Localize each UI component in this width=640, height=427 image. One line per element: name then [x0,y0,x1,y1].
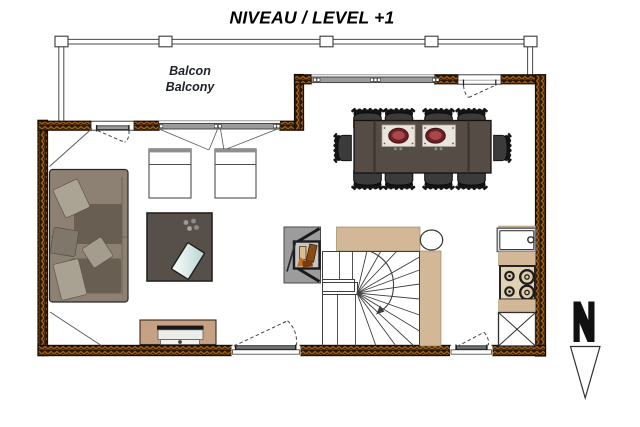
svg-text:NIVEAU / LEVEL +1: NIVEAU / LEVEL +1 [229,8,394,28]
svg-text:Balcon: Balcon [169,64,211,78]
svg-text:Balcony: Balcony [166,80,216,94]
